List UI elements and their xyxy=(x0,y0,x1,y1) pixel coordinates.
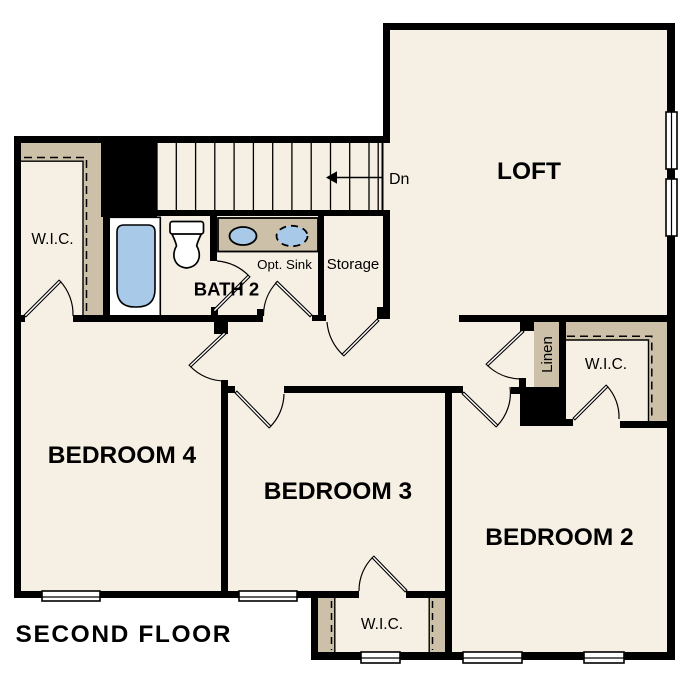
svg-text:BEDROOM 4: BEDROOM 4 xyxy=(48,442,197,469)
svg-text:Opt. Sink: Opt. Sink xyxy=(257,257,312,272)
svg-text:Dn: Dn xyxy=(389,171,409,188)
svg-text:W.I.C.: W.I.C. xyxy=(361,616,403,633)
svg-text:LOFT: LOFT xyxy=(497,158,561,185)
svg-text:W.I.C.: W.I.C. xyxy=(585,356,627,373)
svg-text:BEDROOM 2: BEDROOM 2 xyxy=(485,524,633,551)
svg-text:BATH 2: BATH 2 xyxy=(194,279,259,300)
svg-text:Storage: Storage xyxy=(327,256,380,273)
svg-text:SECOND FLOOR: SECOND FLOOR xyxy=(16,621,233,648)
svg-text:BEDROOM 3: BEDROOM 3 xyxy=(264,478,412,505)
svg-text:W.I.C.: W.I.C. xyxy=(31,231,73,248)
svg-text:Linen: Linen xyxy=(539,336,556,373)
